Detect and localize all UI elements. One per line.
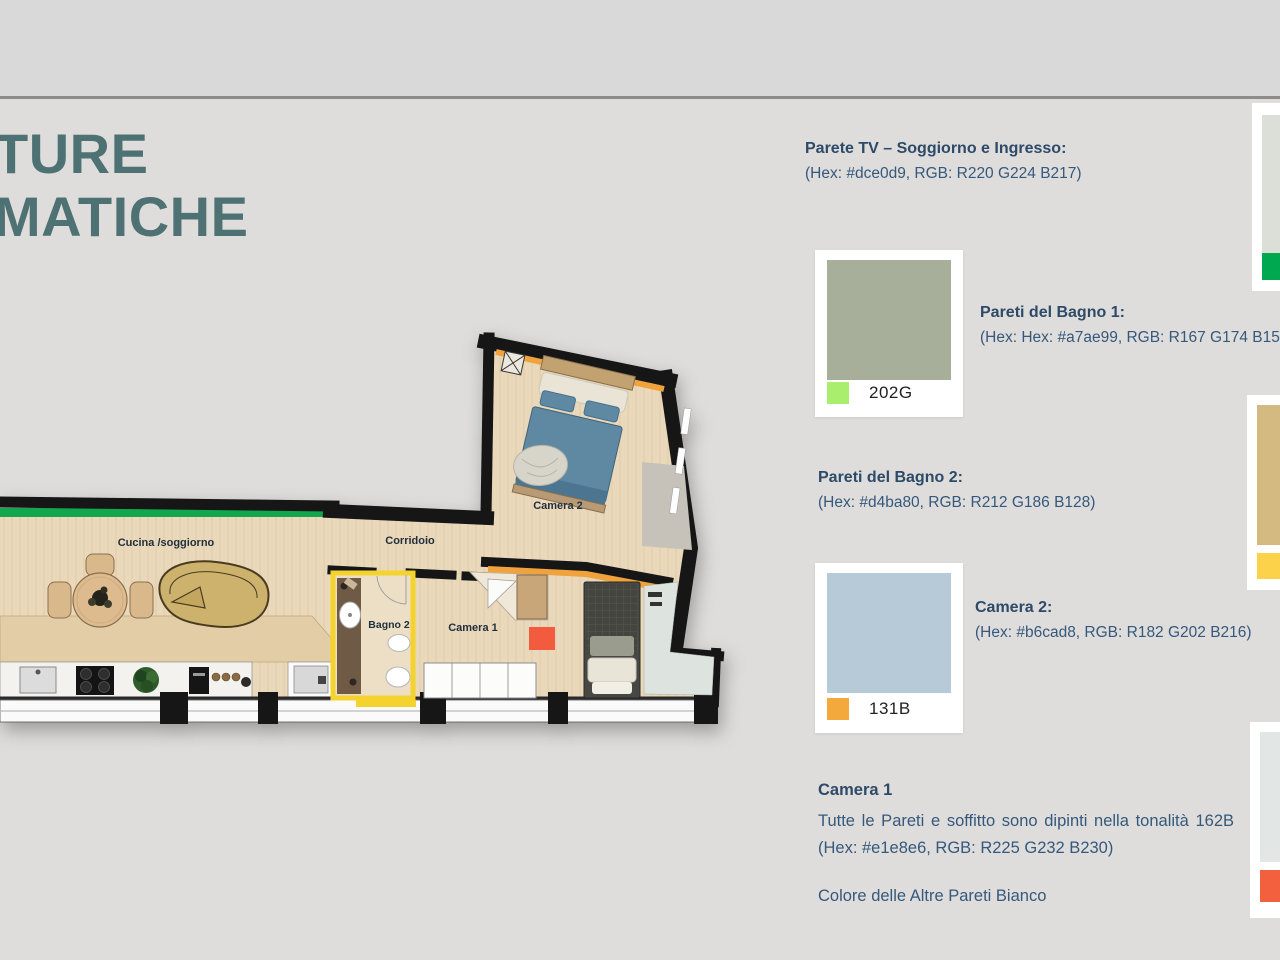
swatch-card-202g: 202G: [815, 250, 963, 417]
swatch-code: 131B: [869, 699, 911, 719]
shower-drain: [318, 676, 326, 684]
swatch-sample: [827, 573, 951, 693]
note-heading: Camera 2:: [975, 599, 1252, 617]
kitchen-counter-band: [0, 616, 352, 662]
slide-canvas: TUREMATICHE: [0, 0, 1280, 960]
label-camera1: Camera 1: [448, 622, 498, 634]
note-footer: Colore delle Altre Pareti Bianco: [818, 887, 1234, 906]
swatch-sample: [1262, 115, 1280, 258]
note-bagno2: Pareti del Bagno 2: (Hex: #d4ba80, RGB: …: [818, 469, 1095, 512]
note-heading: Camera 1: [818, 781, 1234, 800]
note-heading: Pareti del Bagno 1:: [980, 304, 1280, 322]
note-bagno1: Pareti del Bagno 1: (Hex: Hex: #a7ae99, …: [980, 304, 1280, 347]
page-title: TUREMATICHE: [0, 122, 248, 248]
swatch-chip: [1260, 870, 1280, 902]
note-parete-tv: Parete TV – Soggiorno e Ingresso: (Hex: …: [805, 140, 1082, 183]
floor-plan: Cucina /soggiorno Corridoio Bagno 2 Came…: [0, 330, 740, 730]
swatch-chip: [827, 382, 849, 404]
page-title-line-2: MATICHE: [0, 185, 248, 248]
note-detail: (Hex: #b6cad8, RGB: R182 G202 B216): [975, 624, 1252, 642]
note-camera1: Camera 1 Tutte le Pareti e soffitto sono…: [818, 781, 1234, 906]
oven: [189, 667, 209, 694]
label-corridoio: Corridoio: [385, 535, 435, 547]
swatch-sample: [1260, 732, 1280, 862]
sofa: [159, 561, 268, 627]
partial-card-middle: [1247, 395, 1280, 590]
swatch-sample: [827, 260, 951, 380]
swatch-sample: [1257, 405, 1280, 545]
label-camera2: Camera 2: [533, 500, 583, 512]
camera2-picture: [501, 351, 525, 375]
note-heading: Pareti del Bagno 2:: [818, 469, 1095, 487]
header-band: [0, 0, 1280, 99]
camera1-bed: [584, 582, 640, 698]
swatch-chip: [827, 698, 849, 720]
note-detail: (Hex: #dce0d9, RGB: R220 G224 B217): [805, 165, 1082, 183]
note-detail: (Hex: #d4ba80, RGB: R212 G186 B128): [818, 494, 1095, 512]
bagno2-yellow-sill: [356, 700, 416, 707]
note-camera2: Camera 2: (Hex: #b6cad8, RGB: R182 G202 …: [975, 599, 1252, 642]
swatch-code: 202G: [869, 383, 913, 403]
note-heading: Parete TV – Soggiorno e Ingresso:: [805, 140, 1082, 158]
page-title-line-1: TURE: [0, 122, 248, 185]
label-cucina: Cucina /soggiorno: [118, 537, 215, 549]
partial-card-top: [1252, 103, 1280, 291]
swatch-chip: [1257, 553, 1280, 579]
note-detail: (Hex: Hex: #a7ae99, RGB: R167 G174 B153): [980, 329, 1280, 347]
camera1-accent-marker: [529, 627, 555, 650]
swatch-chip: [1262, 253, 1280, 280]
partial-card-bottom: [1250, 722, 1280, 918]
bagno2-room: [333, 573, 413, 698]
note-body: Tutte le Pareti e soffitto sono dipinti …: [818, 808, 1234, 862]
swatch-card-131b: 131B: [815, 563, 963, 733]
label-bagno2: Bagno 2: [368, 619, 410, 631]
